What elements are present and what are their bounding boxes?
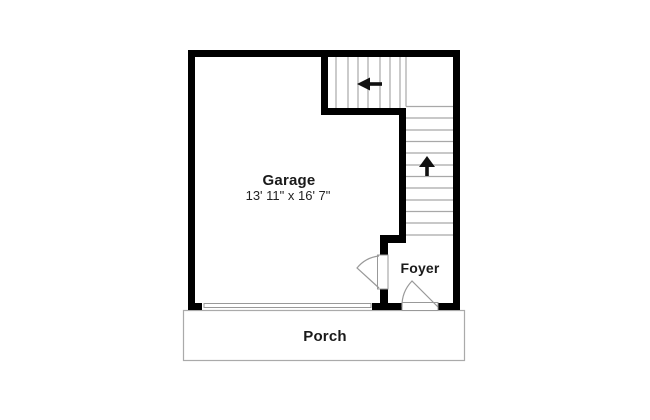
room-label-porch: Porch [225,328,425,345]
room-label-garage: Garage [189,172,389,189]
garage-dimensions: 13' 11" x 16' 7" [188,188,388,203]
arrow-up-icon [419,156,435,176]
lower-stair-treads [406,107,453,236]
front-entry-door [402,281,438,311]
room-label-foyer: Foyer [370,260,470,276]
floorplan-drawing [0,0,650,420]
arrow-left-icon [357,78,382,91]
floorplan: Garage 13' 11" x 16' 7" Foyer Porch [0,0,650,420]
garage-door [204,304,371,308]
